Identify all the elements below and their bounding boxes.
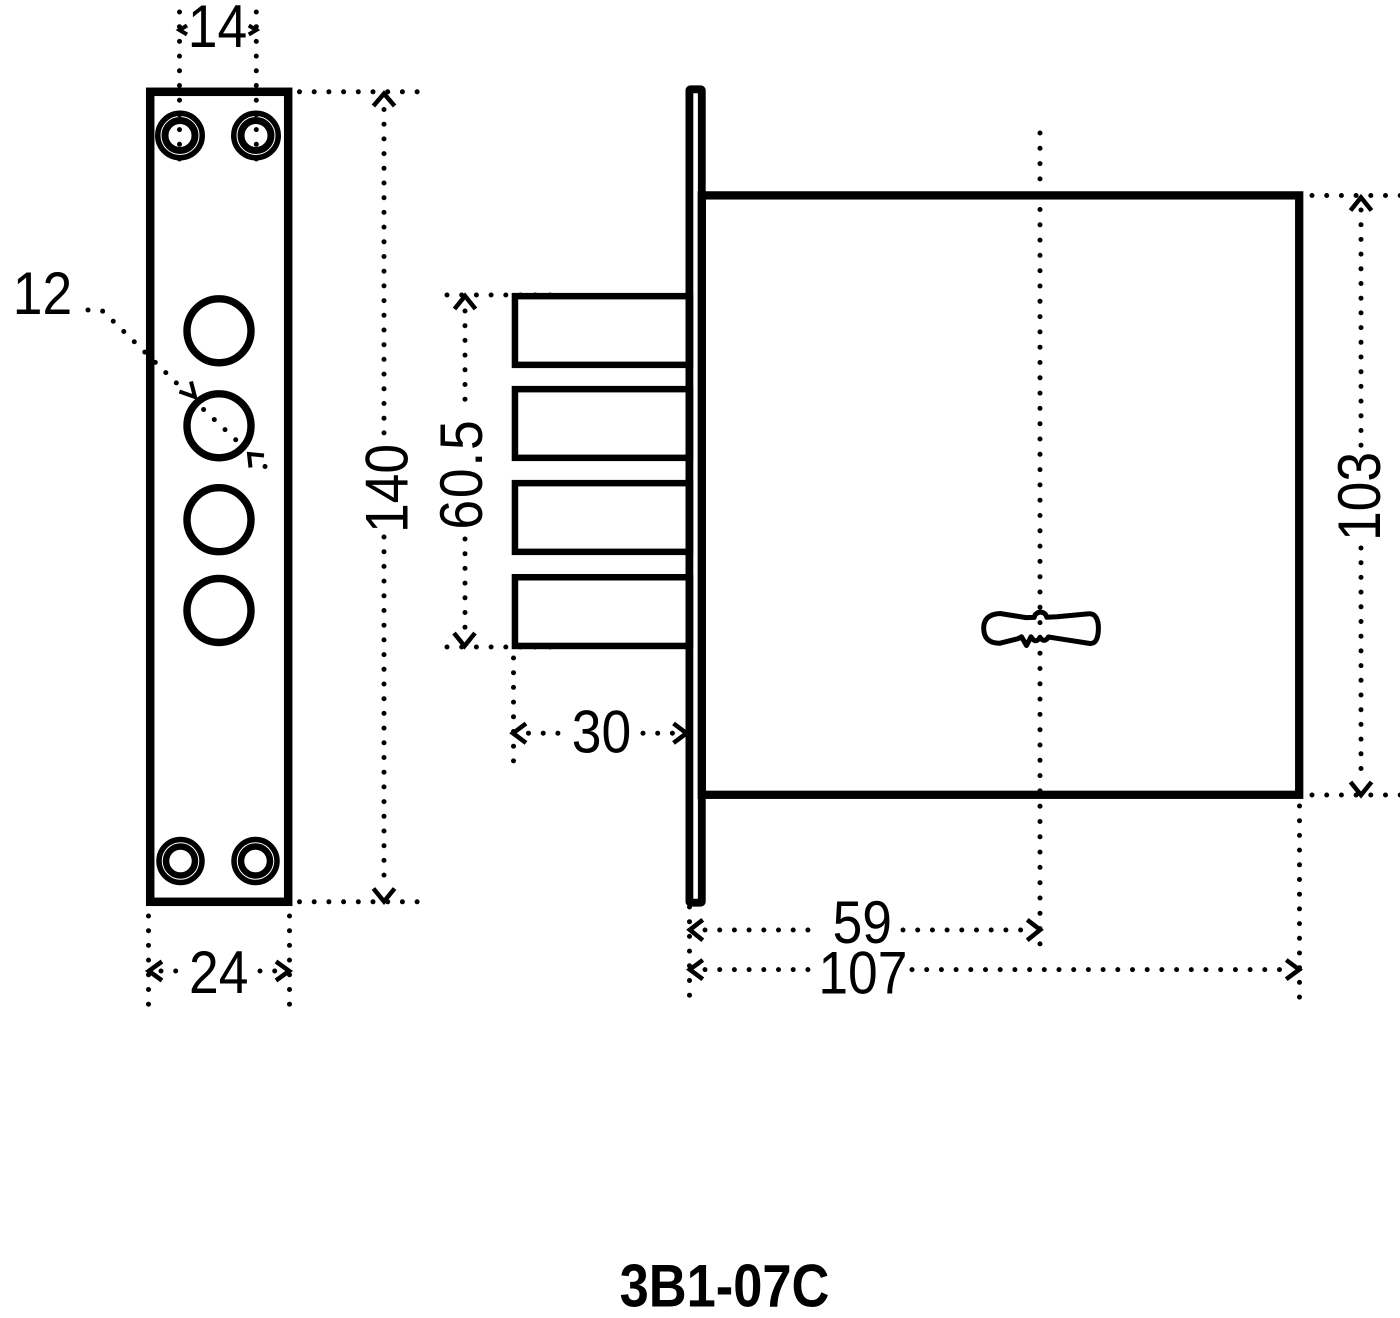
svg-text:103: 103 [1327,452,1394,541]
svg-text:3B1-07C: 3B1-07C [620,1252,830,1318]
svg-text:60.5: 60.5 [429,419,496,530]
svg-text:140: 140 [355,444,422,533]
svg-text:12: 12 [13,261,72,328]
svg-text:30: 30 [572,700,631,767]
svg-text:107: 107 [818,941,907,1008]
svg-text:24: 24 [189,940,248,1007]
svg-text:14: 14 [188,0,247,61]
